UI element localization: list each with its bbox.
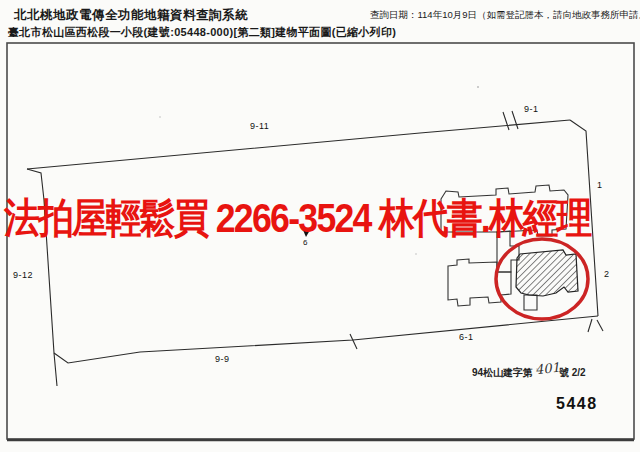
permit-number-handwritten: 401	[534, 360, 560, 378]
parcel-label-9-11: 9-11	[250, 121, 269, 131]
parcel-label-2: 2	[604, 269, 610, 279]
parcel-label-9-9: 9-9	[215, 354, 230, 364]
permit-number-prefix: 94松山建字第	[472, 366, 533, 380]
unit-annex	[524, 295, 537, 310]
watermark-text: 法拍屋輕鬆買 2266-3524 林代書.林經理	[4, 191, 561, 246]
parcel-label-9-12: 9-12	[13, 270, 33, 280]
parcel-boundary	[27, 120, 598, 386]
parcel-label-1: 1	[597, 180, 603, 190]
highlighted-unit	[516, 250, 578, 296]
page: { "header": { "system_title": "北北桃地政電傳全功…	[0, 0, 640, 452]
parcel-label-9-1: 9-1	[524, 104, 539, 114]
building-id-stamp: 5448	[556, 395, 598, 413]
parcel-label-6-1: 6-1	[459, 332, 474, 342]
permit-number-suffix: 號 2/2	[559, 366, 586, 380]
